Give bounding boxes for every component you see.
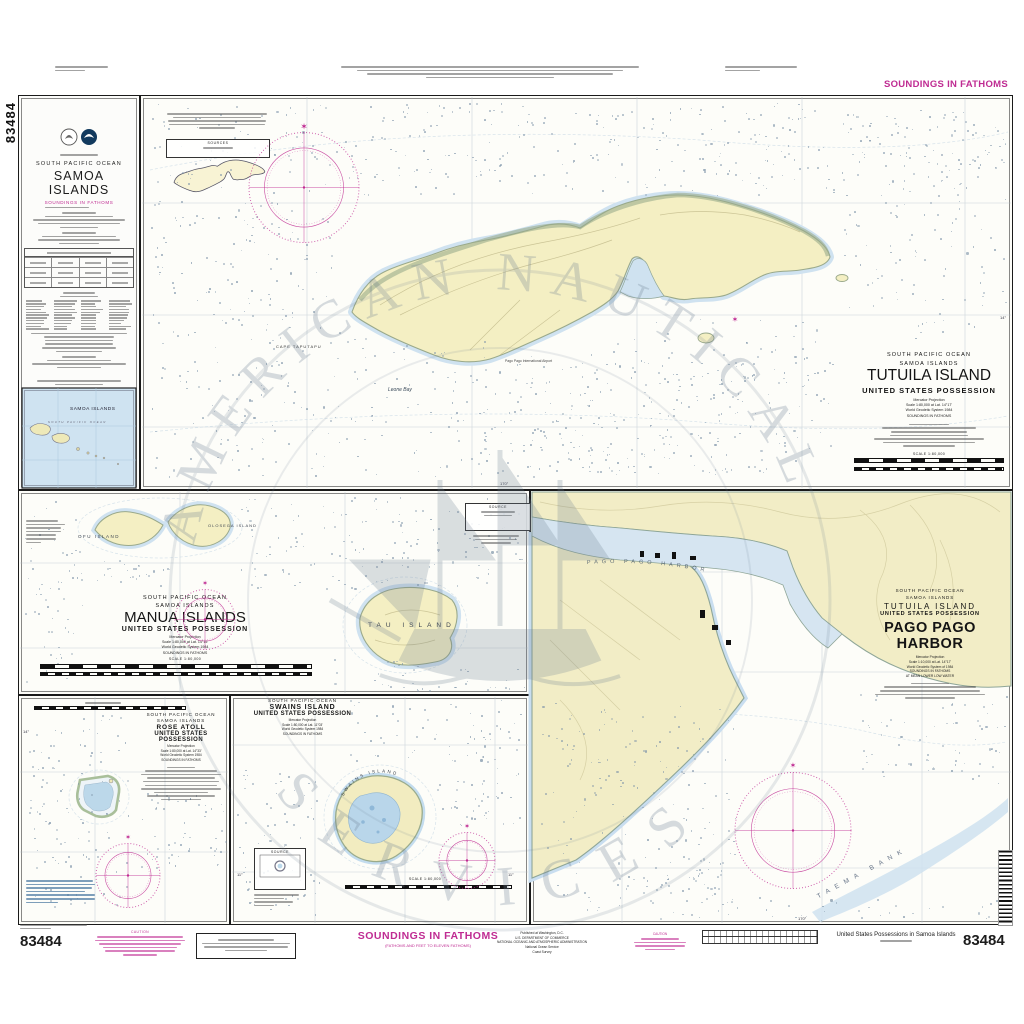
bottom-title: United States Possessions in Samoa Islan… bbox=[836, 932, 956, 944]
panel-title: ROSE ATOLL bbox=[135, 724, 227, 731]
north-star-icon: ✶ bbox=[300, 123, 308, 132]
agency-block: Published at Washington, D.C. U.S. DEPAR… bbox=[466, 931, 618, 954]
north-star-icon: ✶ bbox=[202, 581, 208, 588]
projection-note bbox=[29, 232, 129, 244]
soundings-line: SOUNDINGS IN FATHOMS bbox=[60, 651, 310, 656]
manua-title-block: SOUTH PACIFIC OCEAN SAMOA ISLANDS MANUA … bbox=[60, 595, 310, 656]
caution-heading: CAUTION bbox=[88, 930, 192, 934]
barcode bbox=[998, 850, 1013, 926]
samoa-soundings: SOUNDINGS IN FATHOMS bbox=[22, 200, 136, 205]
scale-bar-secondary bbox=[40, 672, 312, 676]
chart-number-bottom-left: 83484 bbox=[20, 933, 62, 950]
datum-note-line: AT MEAN LOWER LOW WATER bbox=[852, 674, 1008, 679]
tide-table bbox=[24, 248, 134, 288]
ocean-line: SOUTH PACIFIC OCEAN bbox=[135, 712, 227, 717]
manua-source-box: SOURCE bbox=[465, 503, 531, 531]
abbreviations-heading bbox=[31, 292, 127, 297]
inset-caption bbox=[30, 378, 128, 387]
notes-block bbox=[29, 333, 129, 352]
north-star-icon: ✶ bbox=[464, 824, 470, 831]
samoa-ocean: SOUTH PACIFIC OCEAN bbox=[22, 161, 136, 167]
caution-block bbox=[30, 356, 128, 368]
scale-bar-label: SCALE 1:80,000 bbox=[848, 452, 1010, 456]
caution-note bbox=[875, 683, 985, 699]
soundings-note-top: SOUNDINGS IN FATHOMS bbox=[858, 79, 1008, 90]
abbreviations-list bbox=[26, 300, 132, 329]
note-box bbox=[196, 933, 296, 959]
margin-ruler bbox=[702, 930, 818, 944]
swains-source-box: SOURCE bbox=[254, 848, 306, 890]
samoa-title-block: SOUTH PACIFIC OCEAN SAMOA ISLANDS SOUNDI… bbox=[22, 99, 136, 371]
scale-bar bbox=[34, 706, 186, 710]
caution-note bbox=[140, 767, 222, 801]
tutuila-source-box: SOURCES bbox=[166, 139, 270, 158]
tutuila-source-note bbox=[166, 111, 268, 131]
compass-rose bbox=[91, 839, 165, 918]
margin-note bbox=[725, 64, 815, 73]
edition-note bbox=[20, 922, 92, 931]
region-line: SAMOA ISLANDS bbox=[135, 718, 227, 723]
agency-emblems bbox=[22, 127, 136, 152]
ocean-line: SOUTH PACIFIC OCEAN bbox=[852, 588, 1008, 593]
agency-line: Coast Survey bbox=[466, 950, 618, 955]
noaa-emblem-icon bbox=[81, 129, 97, 145]
chart-number-bottom-right: 83484 bbox=[963, 932, 1005, 949]
rose-blue-note bbox=[26, 878, 96, 905]
caution-heading: CAUTION bbox=[628, 932, 692, 936]
rose-title-block: SOUTH PACIFIC OCEAN SAMOA ISLANDS ROSE A… bbox=[135, 712, 227, 803]
possession-line: UNITED STATES POSSESSION bbox=[848, 386, 1010, 395]
scale-bar bbox=[345, 885, 512, 889]
scale-bar-secondary bbox=[854, 467, 1004, 471]
pago-title-block: SOUTH PACIFIC OCEAN SAMOA ISLANDS TUTUIL… bbox=[852, 588, 1008, 701]
region-line: SAMOA ISLANDS bbox=[852, 595, 1008, 600]
scale-bar bbox=[40, 664, 312, 669]
manua-source-note bbox=[465, 533, 527, 546]
soundings-line: SOUNDINGS IN FATHOMS bbox=[135, 758, 227, 763]
emblem-caption bbox=[37, 154, 121, 156]
ocean-line: SOUTH PACIFIC OCEAN bbox=[240, 698, 365, 703]
margin-note bbox=[55, 64, 140, 73]
ocean-line: SOUTH PACIFIC OCEAN bbox=[848, 352, 1010, 358]
scale-bar-label: SCALE 1:80,000 bbox=[110, 657, 260, 661]
chart-sheet: CAPE TAPUTAPU Leone Bay Pago Pago Intern… bbox=[0, 0, 1024, 1024]
source-label: SOURCE bbox=[466, 504, 530, 509]
scale-bar bbox=[854, 458, 1004, 463]
ocean-line: SOUTH PACIFIC OCEAN bbox=[60, 595, 310, 601]
swains-source-note bbox=[254, 892, 302, 908]
scale-bar-label: SCALE 1:80,000 bbox=[370, 877, 480, 881]
soundings-line: SOUNDINGS IN FATHOMS bbox=[240, 732, 365, 737]
swains-title-block: SOUTH PACIFIC OCEAN SWAINS ISLAND UNITED… bbox=[240, 698, 365, 737]
north-star-icon: ✶ bbox=[732, 316, 739, 324]
possession-line: UNITED STATES POSSESSION bbox=[60, 626, 310, 633]
north-star-icon: ✶ bbox=[125, 835, 131, 842]
possession-line: UNITED STATES POSSESSION bbox=[852, 611, 1008, 617]
chart-number-side: 83484 bbox=[3, 102, 18, 143]
tutuila-title-block: SOUTH PACIFIC OCEAN SAMOA ISLANDS TUTUIL… bbox=[848, 352, 1010, 471]
compass-rose bbox=[730, 768, 856, 899]
manua-note bbox=[26, 518, 66, 545]
caution-note bbox=[869, 424, 989, 447]
possession-line: UNITED STATES POSSESSION bbox=[135, 731, 227, 743]
chart-title-text: United States Possessions in Samoa Islan… bbox=[836, 932, 956, 938]
samoa-title: SAMOA ISLANDS bbox=[22, 169, 136, 197]
samoa-note bbox=[22, 207, 112, 209]
authorities-note bbox=[29, 212, 129, 228]
panel-title: SWAINS ISLAND bbox=[240, 704, 365, 711]
margin-note bbox=[340, 64, 640, 80]
panel-title: TUTUILA ISLAND bbox=[848, 367, 1010, 385]
panel-title: PAGO PAGO HARBOR bbox=[852, 620, 1008, 652]
rose-scale-caption bbox=[60, 700, 146, 706]
note-magenta-right: CAUTION bbox=[628, 932, 692, 952]
caution-note-magenta: CAUTION bbox=[88, 930, 192, 958]
soundings-line: SOUNDINGS IN FATHOMS bbox=[848, 414, 1010, 419]
sources-label: SOURCES bbox=[167, 140, 269, 145]
panel-title: MANUA ISLANDS bbox=[60, 609, 310, 626]
island-line: TUTUILA ISLAND bbox=[852, 602, 1008, 611]
north-star-icon: ✶ bbox=[790, 762, 797, 770]
possession-line: UNITED STATES POSSESSION bbox=[240, 711, 365, 717]
